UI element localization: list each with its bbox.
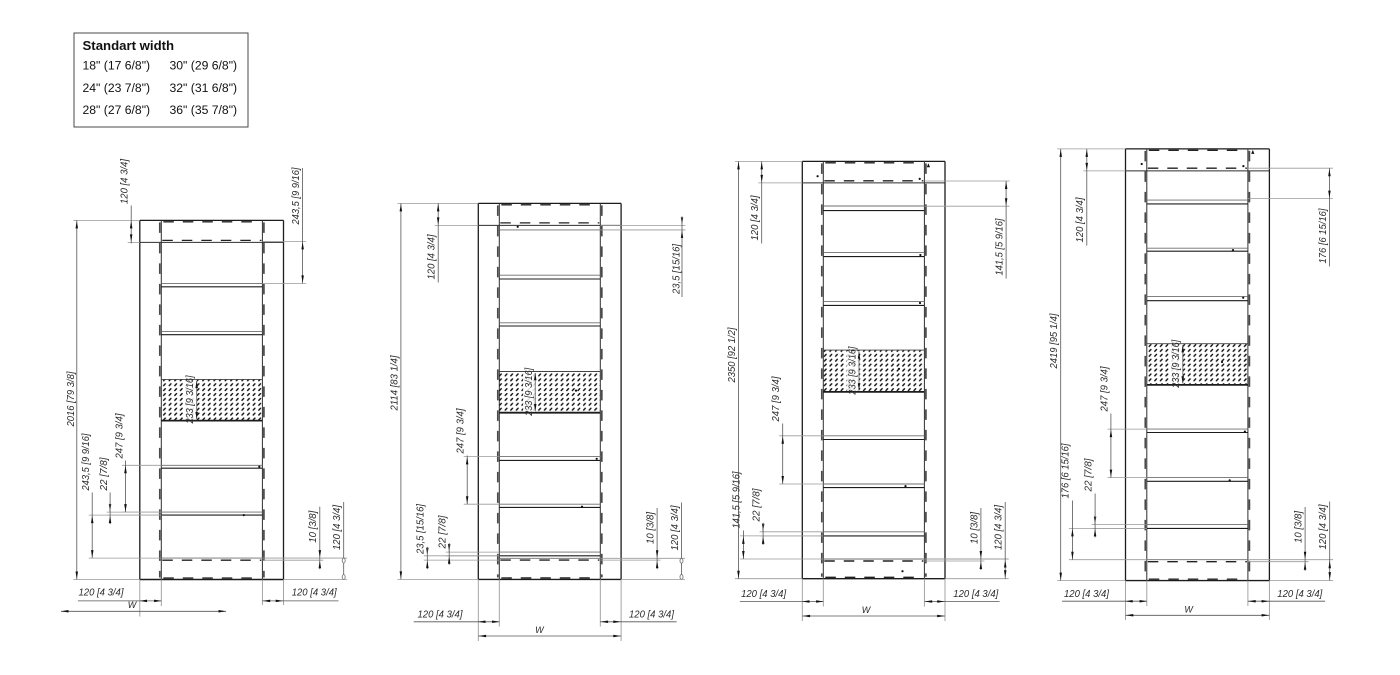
- svg-text:28" (27 6/8"): 28" (27 6/8"): [83, 103, 151, 117]
- svg-text:2016 [79 3/8]: 2016 [79 3/8]: [66, 371, 77, 427]
- svg-text:247 [9 3/4]: 247 [9 3/4]: [456, 408, 467, 454]
- svg-text:247 [9 3/4]: 247 [9 3/4]: [771, 376, 782, 422]
- svg-text:120 [4 3/4]: 120 [4 3/4]: [629, 609, 674, 620]
- svg-text:120 [4 3/4]: 120 [4 3/4]: [1318, 504, 1329, 549]
- svg-text:141,5 [5 9/16]: 141,5 [5 9/16]: [732, 471, 743, 528]
- svg-text:243,5 [9 9/16]: 243,5 [9 9/16]: [291, 167, 302, 225]
- svg-text:10 [3/8]: 10 [3/8]: [646, 512, 657, 544]
- svg-text:22 [7/8]: 22 [7/8]: [99, 457, 110, 491]
- svg-text:233 [9 3/16]: 233 [9 3/16]: [524, 368, 535, 417]
- svg-text:141,5 [5 9/16]: 141,5 [5 9/16]: [995, 218, 1006, 275]
- svg-text:30" (29 6/8"): 30" (29 6/8"): [170, 59, 238, 73]
- svg-text:120 [4 3/4]: 120 [4 3/4]: [1075, 197, 1086, 242]
- svg-text:22 [7/8]: 22 [7/8]: [752, 488, 763, 522]
- svg-text:24" (23 7/8"): 24" (23 7/8"): [83, 81, 151, 95]
- svg-text:36" (35 7/8"): 36" (35 7/8"): [170, 103, 238, 117]
- svg-text:247 [9 3/4]: 247 [9 3/4]: [114, 413, 125, 459]
- svg-text:Standart width: Standart width: [83, 38, 175, 53]
- svg-text:120 [4 3/4]: 120 [4 3/4]: [741, 589, 786, 600]
- svg-text:10 [3/8]: 10 [3/8]: [969, 512, 980, 544]
- svg-text:10 [3/8]: 10 [3/8]: [1294, 511, 1305, 543]
- svg-text:233 [9 3/16]: 233 [9 3/16]: [185, 375, 196, 424]
- svg-text:176 [6 15/16]: 176 [6 15/16]: [1061, 443, 1072, 498]
- svg-text:233 [9 3/16]: 233 [9 3/16]: [847, 346, 858, 395]
- svg-text:23,5 [15/16]: 23,5 [15/16]: [672, 244, 683, 295]
- svg-text:22 [7/8]: 22 [7/8]: [1084, 458, 1095, 492]
- svg-text:120 [4 3/4]: 120 [4 3/4]: [332, 505, 343, 550]
- svg-text:32" (31 6/8"): 32" (31 6/8"): [170, 81, 238, 95]
- svg-text:243,5 [9 9/16]: 243,5 [9 9/16]: [81, 433, 92, 491]
- svg-text:120 [4 3/4]: 120 [4 3/4]: [119, 159, 130, 204]
- svg-text:18" (17 6/8"): 18" (17 6/8"): [83, 59, 151, 73]
- svg-text:W: W: [535, 625, 545, 635]
- svg-text:2419 [95 1/4]: 2419 [95 1/4]: [1049, 313, 1060, 369]
- svg-text:120 [4 3/4]: 120 [4 3/4]: [670, 505, 681, 550]
- svg-text:120 [4 3/4]: 120 [4 3/4]: [953, 589, 998, 600]
- svg-text:120 [4 3/4]: 120 [4 3/4]: [1277, 589, 1322, 600]
- svg-text:247 [9 3/4]: 247 [9 3/4]: [1099, 366, 1110, 412]
- svg-text:2114 [83 1/4]: 2114 [83 1/4]: [389, 355, 400, 411]
- svg-text:120 [4 3/4]: 120 [4 3/4]: [1064, 589, 1109, 600]
- svg-text:120 [4 3/4]: 120 [4 3/4]: [994, 505, 1005, 550]
- svg-text:2350 [92 1/2]: 2350 [92 1/2]: [727, 327, 738, 383]
- svg-text:120 [4 3/4]: 120 [4 3/4]: [426, 234, 437, 279]
- svg-text:233 [9 3/16]: 233 [9 3/16]: [1171, 340, 1182, 389]
- svg-text:W: W: [1184, 605, 1194, 615]
- svg-text:120 [4 3/4]: 120 [4 3/4]: [750, 195, 761, 240]
- svg-text:176 [6 15/16]: 176 [6 15/16]: [1318, 208, 1329, 263]
- svg-text:120 [4 3/4]: 120 [4 3/4]: [79, 588, 124, 599]
- svg-text:23,5 [15/16]: 23,5 [15/16]: [416, 504, 427, 555]
- svg-text:120 [4 3/4]: 120 [4 3/4]: [292, 588, 337, 599]
- svg-text:120 [4 3/4]: 120 [4 3/4]: [418, 609, 463, 620]
- svg-text:10 [3/8]: 10 [3/8]: [308, 510, 319, 542]
- svg-text:22 [7/8]: 22 [7/8]: [438, 515, 449, 549]
